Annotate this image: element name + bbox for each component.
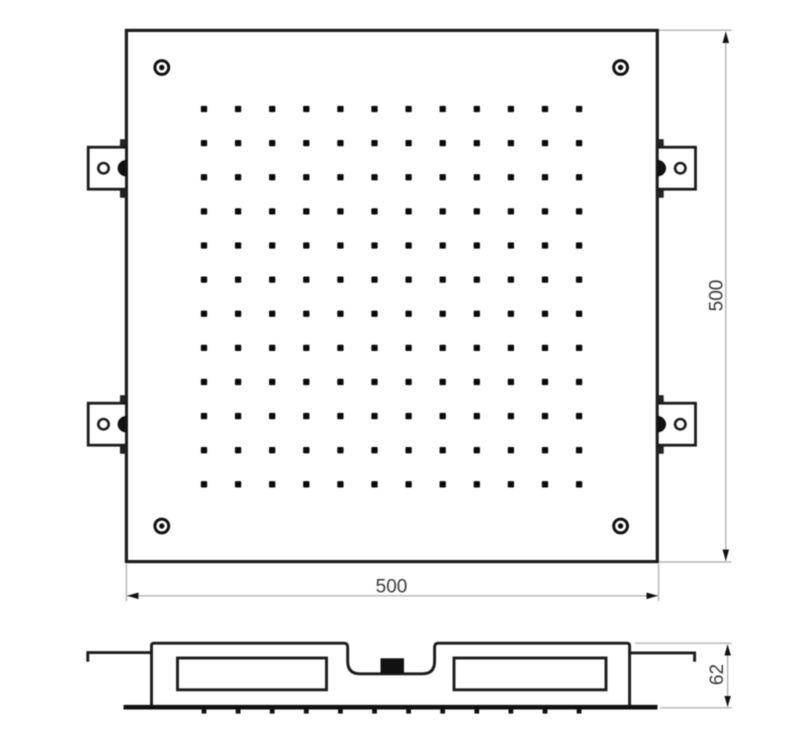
svg-text:62: 62 bbox=[707, 664, 728, 685]
svg-text:500: 500 bbox=[707, 280, 728, 312]
svg-text:500: 500 bbox=[376, 577, 408, 598]
